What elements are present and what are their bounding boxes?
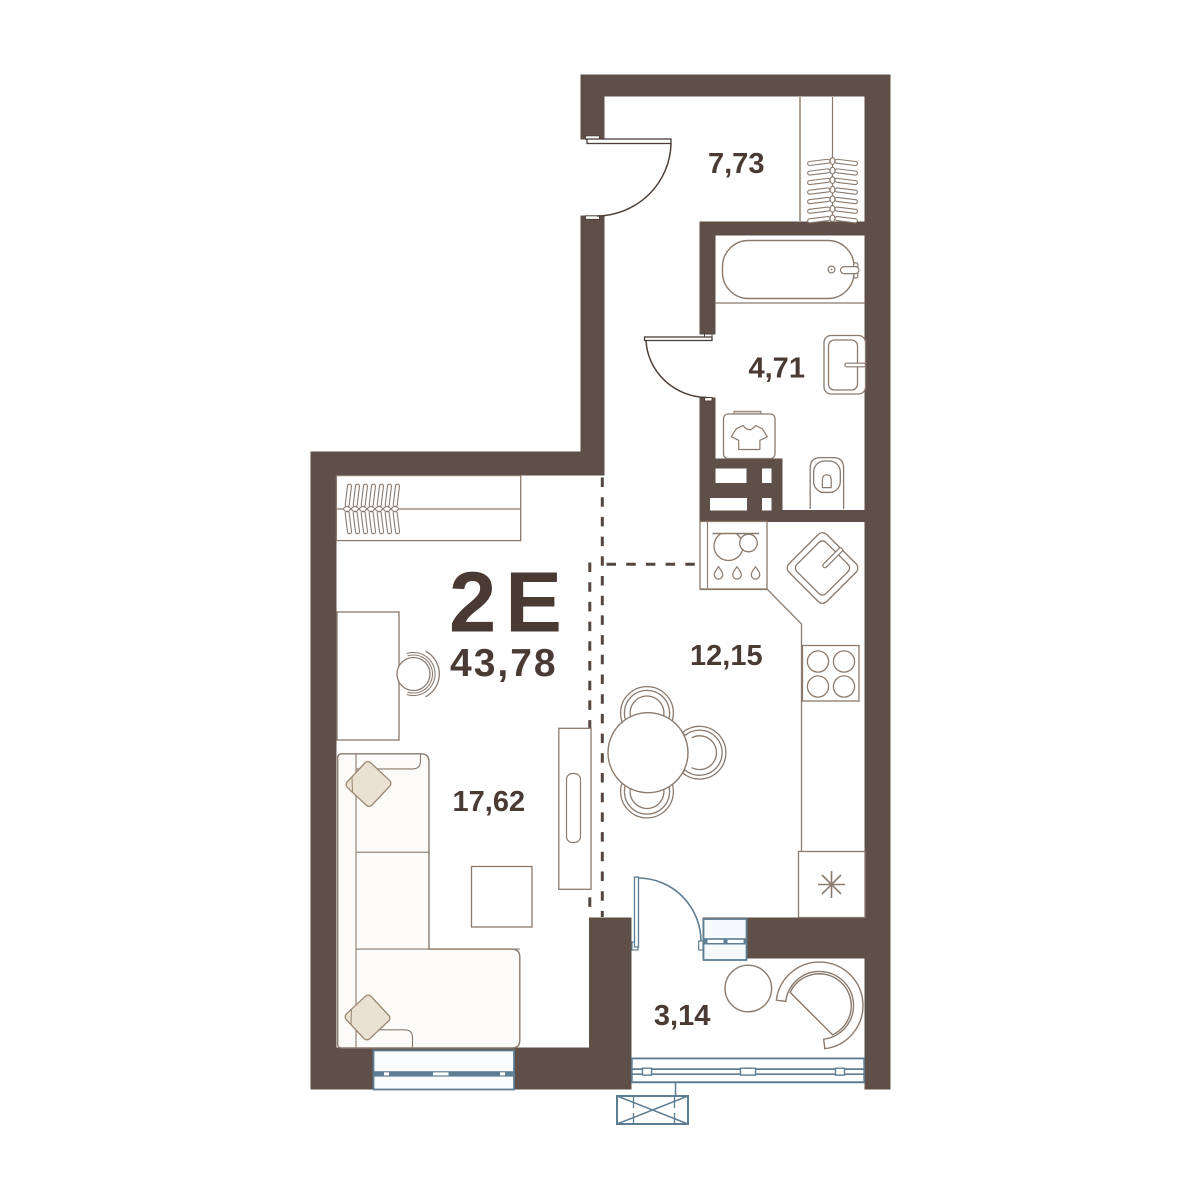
svg-text:43,78: 43,78 [450,642,558,685]
svg-text:17,62: 17,62 [453,786,526,818]
svg-text:4,71: 4,71 [749,353,805,385]
svg-text:2E: 2E [449,556,571,651]
svg-text:7,73: 7,73 [708,148,764,180]
svg-text:3,14: 3,14 [654,1000,710,1032]
svg-text:12,15: 12,15 [690,640,763,672]
